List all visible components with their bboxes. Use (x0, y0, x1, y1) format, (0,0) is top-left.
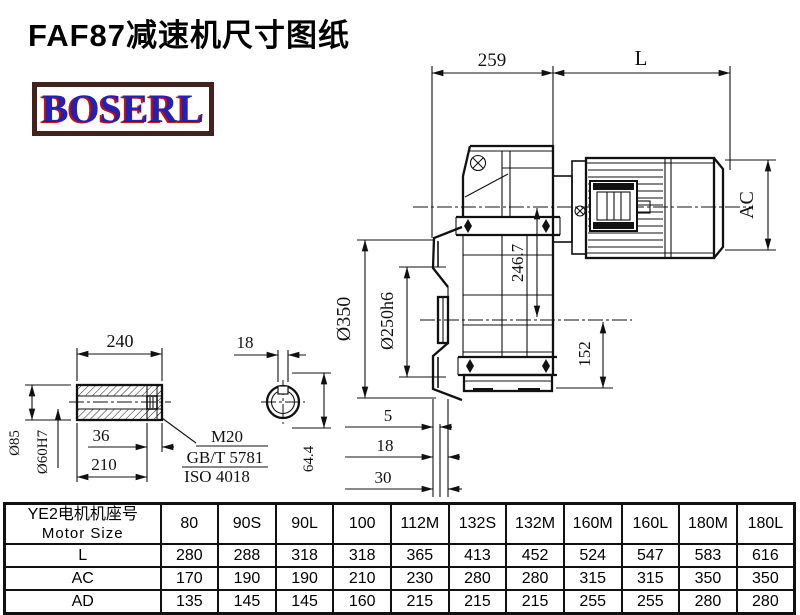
cell: 215 (449, 590, 507, 614)
dim-60H7: Ø60H7 (35, 429, 51, 474)
table-row-L: L 280 288 318 318 365 413 452 524 547 58… (5, 544, 795, 567)
cell: 547 (622, 544, 680, 567)
bolt-symbol (542, 219, 550, 233)
callout-m20: M20 (211, 427, 243, 446)
callout-iso: ISO 4018 (184, 467, 250, 486)
fan-cover (714, 158, 723, 258)
cell: 215 (391, 590, 449, 614)
cell: 350 (737, 567, 795, 590)
cell: 230 (391, 567, 449, 590)
dim-64-4: 64.4 (301, 445, 317, 472)
keyway (278, 386, 288, 394)
cell: 215 (506, 590, 564, 614)
step-dimensions: 5 18 30 (345, 399, 462, 497)
cell: 145 (276, 590, 334, 614)
cell: 255 (564, 590, 622, 614)
bolt-symbol (542, 359, 550, 373)
size-col: 160M (564, 504, 622, 545)
size-col: 160L (622, 504, 680, 545)
main-view: 259 L (333, 46, 776, 497)
header-cn: YE2电机机座号 (6, 506, 160, 524)
ac-dimension: AC (725, 160, 776, 250)
cell: 365 (391, 544, 449, 567)
cell: 280 (737, 590, 795, 614)
size-col: 80 (161, 504, 219, 545)
size-col: 112M (391, 504, 449, 545)
size-col: 90S (218, 504, 276, 545)
dim-259: 259 (478, 50, 507, 71)
flange-dimensions: Ø350 Ø250h6 (333, 240, 446, 398)
top-dimensions: 259 L (432, 46, 730, 238)
row-label: AC (5, 567, 161, 590)
cell: 280 (506, 567, 564, 590)
size-col: 132M (506, 504, 564, 545)
table-header-label: YE2电机机座号 Motor Size (5, 504, 161, 545)
cell: 190 (218, 567, 276, 590)
cell: 583 (679, 544, 737, 567)
cell: 318 (333, 544, 391, 567)
size-col: 90L (276, 504, 334, 545)
cell: 280 (679, 590, 737, 614)
cell: 616 (737, 544, 795, 567)
dim-5: 5 (384, 406, 393, 425)
dimension-drawing: 259 L (0, 0, 800, 502)
callout-gbt: GB/T 5781 (187, 448, 264, 467)
size-col: 100 (333, 504, 391, 545)
table-row-AC: AC 170 190 190 210 230 280 280 315 315 3… (5, 567, 795, 590)
table-row-AD: AD 135 145 145 160 215 215 215 255 255 2… (5, 590, 795, 614)
cell: 145 (218, 590, 276, 614)
cell: 210 (333, 567, 391, 590)
header-en: Motor Size (6, 525, 160, 542)
cell: 350 (679, 567, 737, 590)
motor (586, 158, 723, 258)
bolt-symbol (464, 219, 472, 233)
cell: 288 (218, 544, 276, 567)
dim-18-key: 18 (237, 333, 254, 352)
dim-L: L (635, 46, 648, 70)
bolt-symbol (466, 359, 474, 373)
dim-350: Ø350 (333, 297, 355, 341)
cell: 524 (564, 544, 622, 567)
cell: 318 (276, 544, 334, 567)
drawing-page: { "page": { "title": "FAF87减速机尺寸图纸", "lo… (0, 0, 800, 614)
dim-30: 30 (375, 468, 392, 487)
cell: 190 (276, 567, 334, 590)
size-col: 180M (679, 504, 737, 545)
cell: 135 (161, 590, 219, 614)
bolt-callout: M20 GB/T 5781 ISO 4018 (162, 418, 268, 486)
dim-85: Ø85 (7, 430, 23, 456)
size-col: 132S (449, 504, 507, 545)
size-col: 180L (737, 504, 795, 545)
cell: 413 (449, 544, 507, 567)
dim-240: 240 (107, 331, 134, 351)
cell: 452 (506, 544, 564, 567)
cell: 280 (449, 567, 507, 590)
dim-18-flange: 18 (377, 436, 394, 455)
cell: 170 (161, 567, 219, 590)
row-label: AD (5, 590, 161, 614)
dim-210: 210 (91, 455, 117, 474)
dim-246-7: 246.7 (508, 243, 527, 282)
dim-152: 152 (575, 341, 594, 367)
motor-size-table: YE2电机机座号 Motor Size 80 90S 90L 100 112M … (3, 502, 796, 615)
dim-250h6: Ø250h6 (377, 292, 397, 350)
table-header-row: YE2电机机座号 Motor Size 80 90S 90L 100 112M … (5, 504, 795, 545)
dim-36: 36 (93, 426, 110, 445)
row-label: L (5, 544, 161, 567)
cell: 315 (564, 567, 622, 590)
dim-AC: AC (736, 191, 758, 219)
cell: 280 (161, 544, 219, 567)
cell: 255 (622, 590, 680, 614)
cell: 315 (622, 567, 680, 590)
shaft-detail-view: 240 Ø85 Ø60H7 36 210 M20 GB/T 5781 ISO 4… (7, 331, 268, 486)
terminal-box (590, 181, 637, 231)
cell: 160 (333, 590, 391, 614)
